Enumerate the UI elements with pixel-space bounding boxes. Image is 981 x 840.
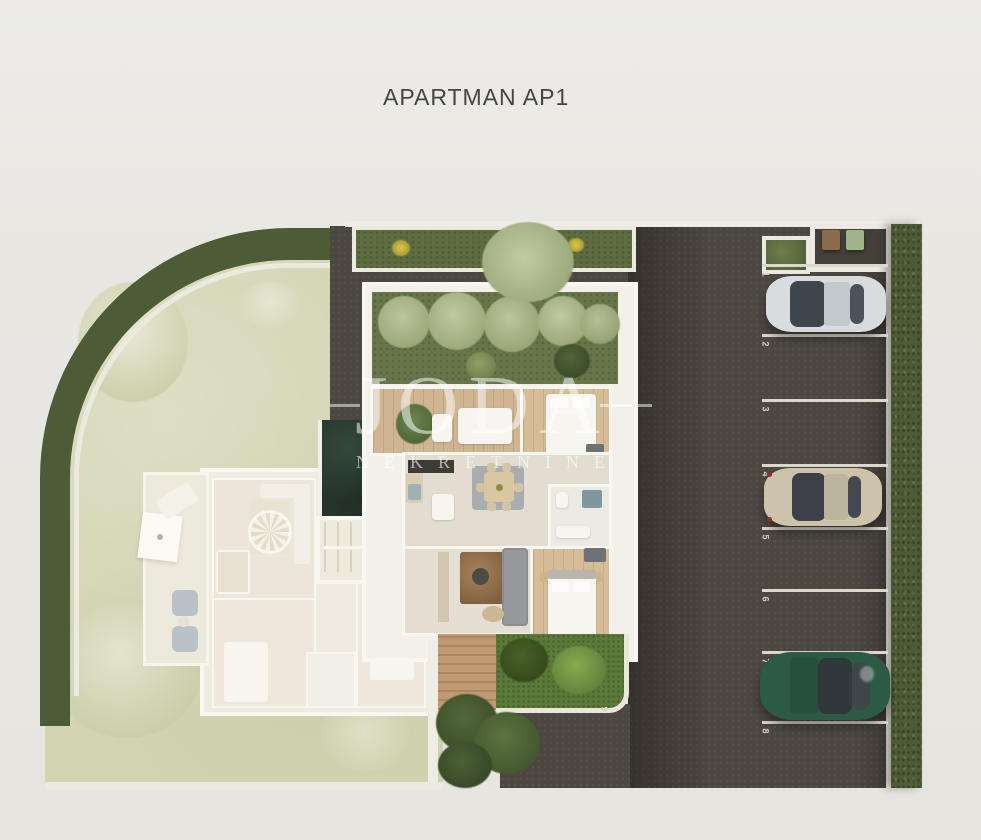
parking-line — [762, 334, 888, 337]
parking-space-number: 6 — [761, 596, 771, 601]
parking-planter — [762, 236, 810, 274]
sun-lounger — [172, 626, 198, 652]
sofa — [502, 548, 528, 626]
bed-2 — [548, 570, 596, 642]
side-table — [178, 616, 189, 627]
neighbor-sofa — [294, 484, 310, 564]
parking-space-number: 3 — [761, 406, 771, 411]
toilet — [556, 492, 568, 508]
parking-space-number: 9 — [600, 706, 610, 711]
parking-space-number: 1 — [761, 271, 771, 276]
olive-tree — [378, 296, 430, 348]
daybed — [458, 408, 512, 444]
lawn-curb — [45, 782, 443, 789]
shrub — [500, 638, 548, 682]
parking-space-number: 2 — [761, 341, 771, 346]
watermark-line-left — [330, 404, 360, 407]
parking-line — [762, 527, 888, 530]
pillow — [550, 398, 568, 408]
sun-lounger — [172, 590, 198, 616]
watermark-subtitle: NEKRETNINE — [356, 452, 620, 473]
kitchen-island — [432, 494, 454, 520]
neighbor-bathroom — [306, 652, 356, 708]
parking-line — [762, 464, 888, 467]
shrub — [552, 646, 606, 694]
vanity — [556, 526, 590, 538]
shrub — [466, 352, 496, 380]
olive-tree — [580, 304, 620, 344]
green-car — [760, 652, 890, 720]
large-olive-tree — [482, 222, 574, 302]
tree — [438, 742, 492, 788]
pillow — [552, 582, 569, 592]
wardrobe — [584, 548, 606, 562]
chair — [514, 483, 523, 492]
kitchen-sink — [408, 484, 421, 500]
parking-line — [762, 589, 888, 592]
pillow — [573, 582, 590, 592]
parking-line — [762, 399, 888, 402]
tv-sideboard — [438, 552, 449, 622]
right-hedge — [891, 224, 922, 788]
table-plant — [496, 484, 503, 491]
yellow-flowers — [392, 240, 410, 256]
coffee-table — [472, 568, 489, 585]
parasol-pole — [157, 534, 163, 540]
parking-line — [762, 264, 888, 267]
chair — [502, 502, 511, 511]
parking-space-number: 5 — [761, 534, 771, 539]
pillow — [572, 398, 590, 408]
garden-wall — [428, 640, 438, 782]
nightstand — [540, 572, 548, 582]
neighbor-bed — [224, 642, 268, 702]
green-bin — [846, 230, 864, 250]
pouf — [482, 606, 504, 622]
silver-car — [766, 276, 886, 332]
parking-line — [762, 721, 888, 724]
page-title: APARTMAN AP1 — [383, 84, 569, 111]
olive-tree — [484, 296, 540, 352]
neighbor-sofa — [260, 484, 296, 498]
round-daybed — [248, 510, 292, 554]
terrace-plant — [396, 404, 434, 444]
headboard — [548, 570, 596, 579]
beige-car — [764, 468, 882, 526]
watermark-line-right — [600, 404, 652, 407]
shower — [582, 490, 602, 508]
nightstand — [596, 572, 604, 582]
chair — [487, 502, 496, 511]
chair — [476, 483, 485, 492]
shrub — [554, 344, 590, 378]
armchair — [432, 414, 452, 442]
parking-space-number: 8 — [761, 728, 771, 733]
brown-bin — [822, 230, 840, 250]
neighbor-dining-table — [216, 550, 250, 594]
olive-tree — [428, 292, 486, 350]
